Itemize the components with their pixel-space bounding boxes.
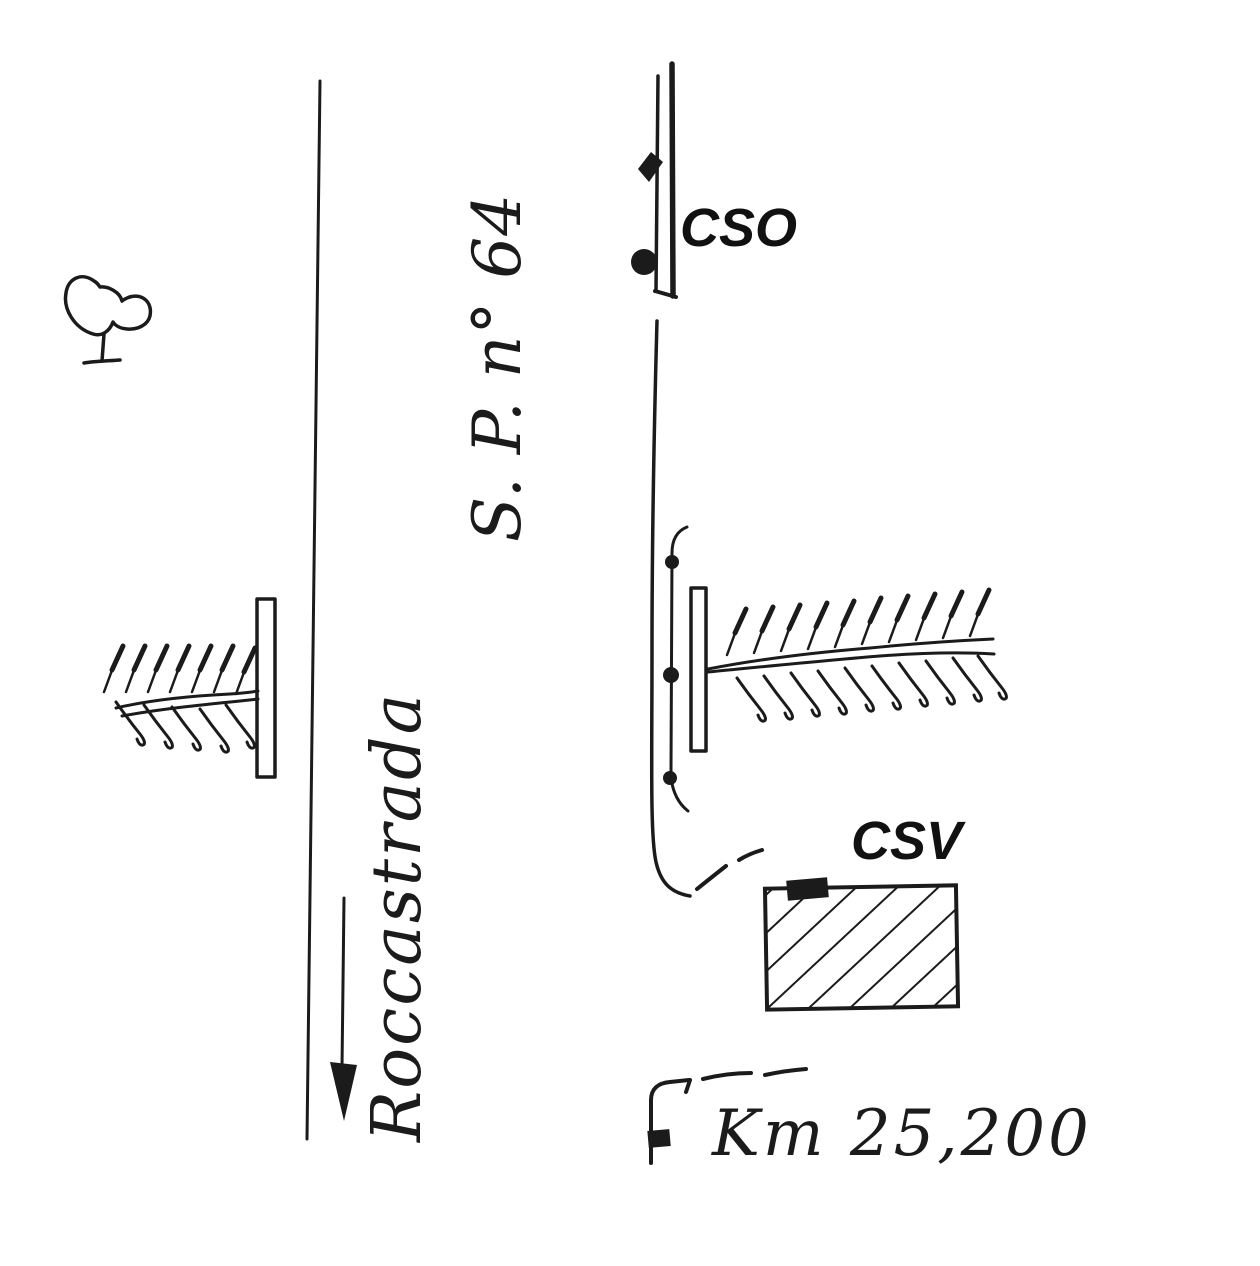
sketch-canvas: S. P. n° 64 Roccastrada CSO	[0, 0, 1260, 1266]
tree-trunk	[102, 334, 104, 361]
cso-marker-dot-icon	[631, 249, 657, 275]
hatch-upper-right	[727, 590, 989, 655]
down-arrowhead-icon	[330, 1062, 357, 1121]
dashed-road-edge	[765, 1069, 806, 1075]
guardrail-right	[691, 588, 706, 751]
cso-label: CSO	[680, 198, 797, 258]
fence-post-dot	[663, 771, 677, 785]
fence-post-dot	[665, 555, 679, 569]
km-road-corner	[651, 1080, 689, 1163]
road-name-label: S. P. n° 64	[459, 193, 536, 542]
building-hatch	[765, 885, 958, 1009]
direction-label: Roccastrada	[358, 692, 437, 1144]
left-culvert	[104, 599, 275, 777]
csv-building	[765, 877, 958, 1009]
main-road-line	[307, 81, 320, 1139]
fence-line-with-posts	[663, 527, 688, 811]
dashed-road-edge	[739, 850, 762, 860]
hatch-lower-left	[116, 702, 254, 752]
dashed-road-edge	[703, 1073, 751, 1079]
cso-marker-diamond-icon	[638, 152, 663, 182]
direction-arrow	[330, 898, 357, 1121]
fence-post-dot	[663, 667, 679, 683]
guardrail-left	[257, 599, 275, 777]
tree-icon	[66, 277, 151, 363]
sketch-page: S. P. n° 64 Roccastrada CSO	[0, 0, 1260, 1266]
stream-right	[708, 639, 994, 672]
dashed-road-edge	[697, 866, 726, 889]
cso-road-segment	[631, 64, 676, 297]
right-culvert	[691, 588, 1006, 751]
csv-label: CSV	[851, 811, 966, 871]
hatch-upper-left	[104, 646, 255, 694]
tree-base	[84, 360, 120, 363]
stream-left	[116, 691, 258, 716]
km-label: Km 25,200	[711, 1097, 1092, 1171]
building-door-icon	[786, 877, 829, 900]
km-stone-icon	[647, 1129, 670, 1148]
